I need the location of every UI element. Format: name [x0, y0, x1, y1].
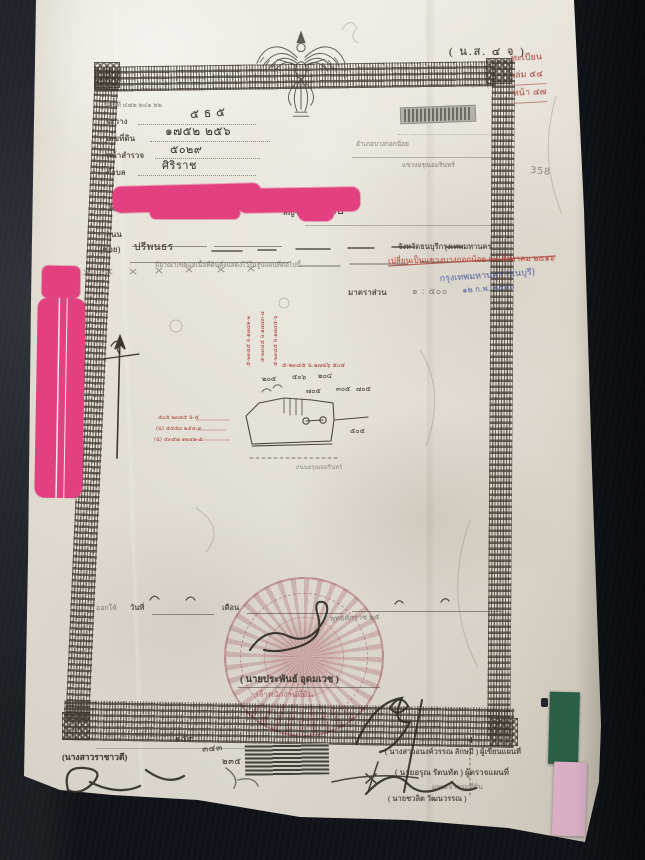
- registry-volume: เล่ม ๕๔: [512, 66, 546, 86]
- border-corner-ornament: [486, 58, 512, 84]
- field-rawang-label: ระวาง: [106, 115, 127, 128]
- redaction-margin-strip: [34, 298, 85, 499]
- seal-title: เจ้าพนักงานที่ดิน: [256, 688, 313, 701]
- field-landno-label: เลขที่ดิน: [106, 132, 135, 145]
- field-tambon-line: [138, 165, 256, 176]
- redaction-owner-name: [298, 205, 334, 221]
- registry-red-block: ทะเบียน เล่ม ๕๔ หน้า ๔๗: [511, 49, 547, 104]
- border-band-right: [487, 60, 515, 736]
- dark-speck: [541, 698, 548, 707]
- road-label: ถนน: [106, 228, 122, 241]
- issued-label: ออกให้: [96, 603, 117, 614]
- province-print: จังหวัดธนบุรีกรุงเทพมหานคร: [398, 241, 492, 253]
- border-corner-ornament: [62, 712, 90, 740]
- redaction-margin-small: [42, 266, 81, 299]
- photo-scene: ( น.ส. ๔ จ ) ทะเบียน เล่ม ๕๔ หน้า ๔๗ 358…: [0, 0, 645, 860]
- redaction-owner-name: [150, 207, 240, 219]
- issue-month-label: เดือน: [222, 602, 239, 614]
- garuda-emblem: [252, 26, 350, 124]
- boundary-note: มีอาณาเขตแลเนื้อที่ดินดั่งแสดงไว้ในรูปแผ…: [155, 260, 301, 270]
- footer-hand-number: ๓๔๓: [201, 740, 223, 756]
- redacted-hatch-block: [245, 743, 330, 775]
- footer-right-line4: ( นายชวลิต วัฒนวรรณ ): [388, 793, 466, 805]
- field-tambon-faint: แขวงอรุณอมรินทร์: [402, 160, 455, 170]
- scale-value: ๑ : ๕๐๐: [412, 284, 448, 298]
- field-serial: เลขที่ ๔๗๒ ๒๔๑ ๒๒: [106, 100, 162, 110]
- issue-date-line: [152, 604, 214, 615]
- field-rawang-value: ๕ ธ ๕: [189, 103, 226, 124]
- tab-sticker-pink: [552, 762, 587, 837]
- registry-label: ทะเบียน: [511, 49, 545, 68]
- drafter-role: ผู้เขียนแผนที่: [480, 747, 521, 756]
- border-corner-ornament: [94, 62, 120, 88]
- registry-page: หน้า ๔๗: [512, 84, 546, 104]
- field-amphoe-line: [352, 147, 508, 158]
- checker-name: ( นายอรุณ รัตนทัต ): [395, 768, 463, 777]
- soi-label: (ซอย): [100, 243, 120, 256]
- footer-hand-number: ๑๕๓: [175, 731, 194, 745]
- footer-right-line3: แทนเจ้ากรมที่ดิน: [432, 782, 483, 793]
- issue-era-line: [352, 601, 502, 612]
- seal-signer-line: [238, 677, 380, 688]
- road-line2: [214, 236, 282, 247]
- field-landno-value: ๑๗๕๒ ๒๕๖: [165, 122, 231, 141]
- footer-right-line1: ( นางสาวอนงค์วรรณ ลักษมี ) ผู้เขียนแผนที…: [385, 746, 521, 758]
- checker-role: ผู้ตรวจแผนที่: [465, 768, 509, 777]
- barcode-sticker: [400, 105, 477, 125]
- barcode-underline: [398, 124, 506, 135]
- tab-sticker-green: [548, 692, 580, 765]
- field-tambon-value: ศิริราช: [162, 156, 197, 174]
- issue-era-label: พุทธศักราช ๒๕: [330, 611, 380, 625]
- drafter-name: ( นางสาวอนงค์วรรณ ลักษมี ): [385, 747, 478, 756]
- pencil-page-number: 358: [529, 165, 551, 178]
- footer-left-name: (นางสาวราชาวดี): [62, 750, 127, 764]
- footer-right-sup: 4: [468, 736, 474, 745]
- footer-hand-number: ๒๓๕: [222, 754, 241, 768]
- field-tambon-label: ตำบล: [106, 166, 126, 179]
- scale-label: มาตราส่วน: [348, 286, 387, 299]
- border-corner-ornament: [490, 718, 518, 746]
- field-survey-label: หน้าสำรวจ: [106, 149, 144, 162]
- nationality-line: [305, 215, 495, 226]
- footer-right-line2: ( นายอรุณ รัตนทัต ) ผู้ตรวจแผนที่: [395, 766, 509, 779]
- issue-date-label: วันที่: [130, 602, 144, 614]
- issue-month-line: [247, 603, 343, 614]
